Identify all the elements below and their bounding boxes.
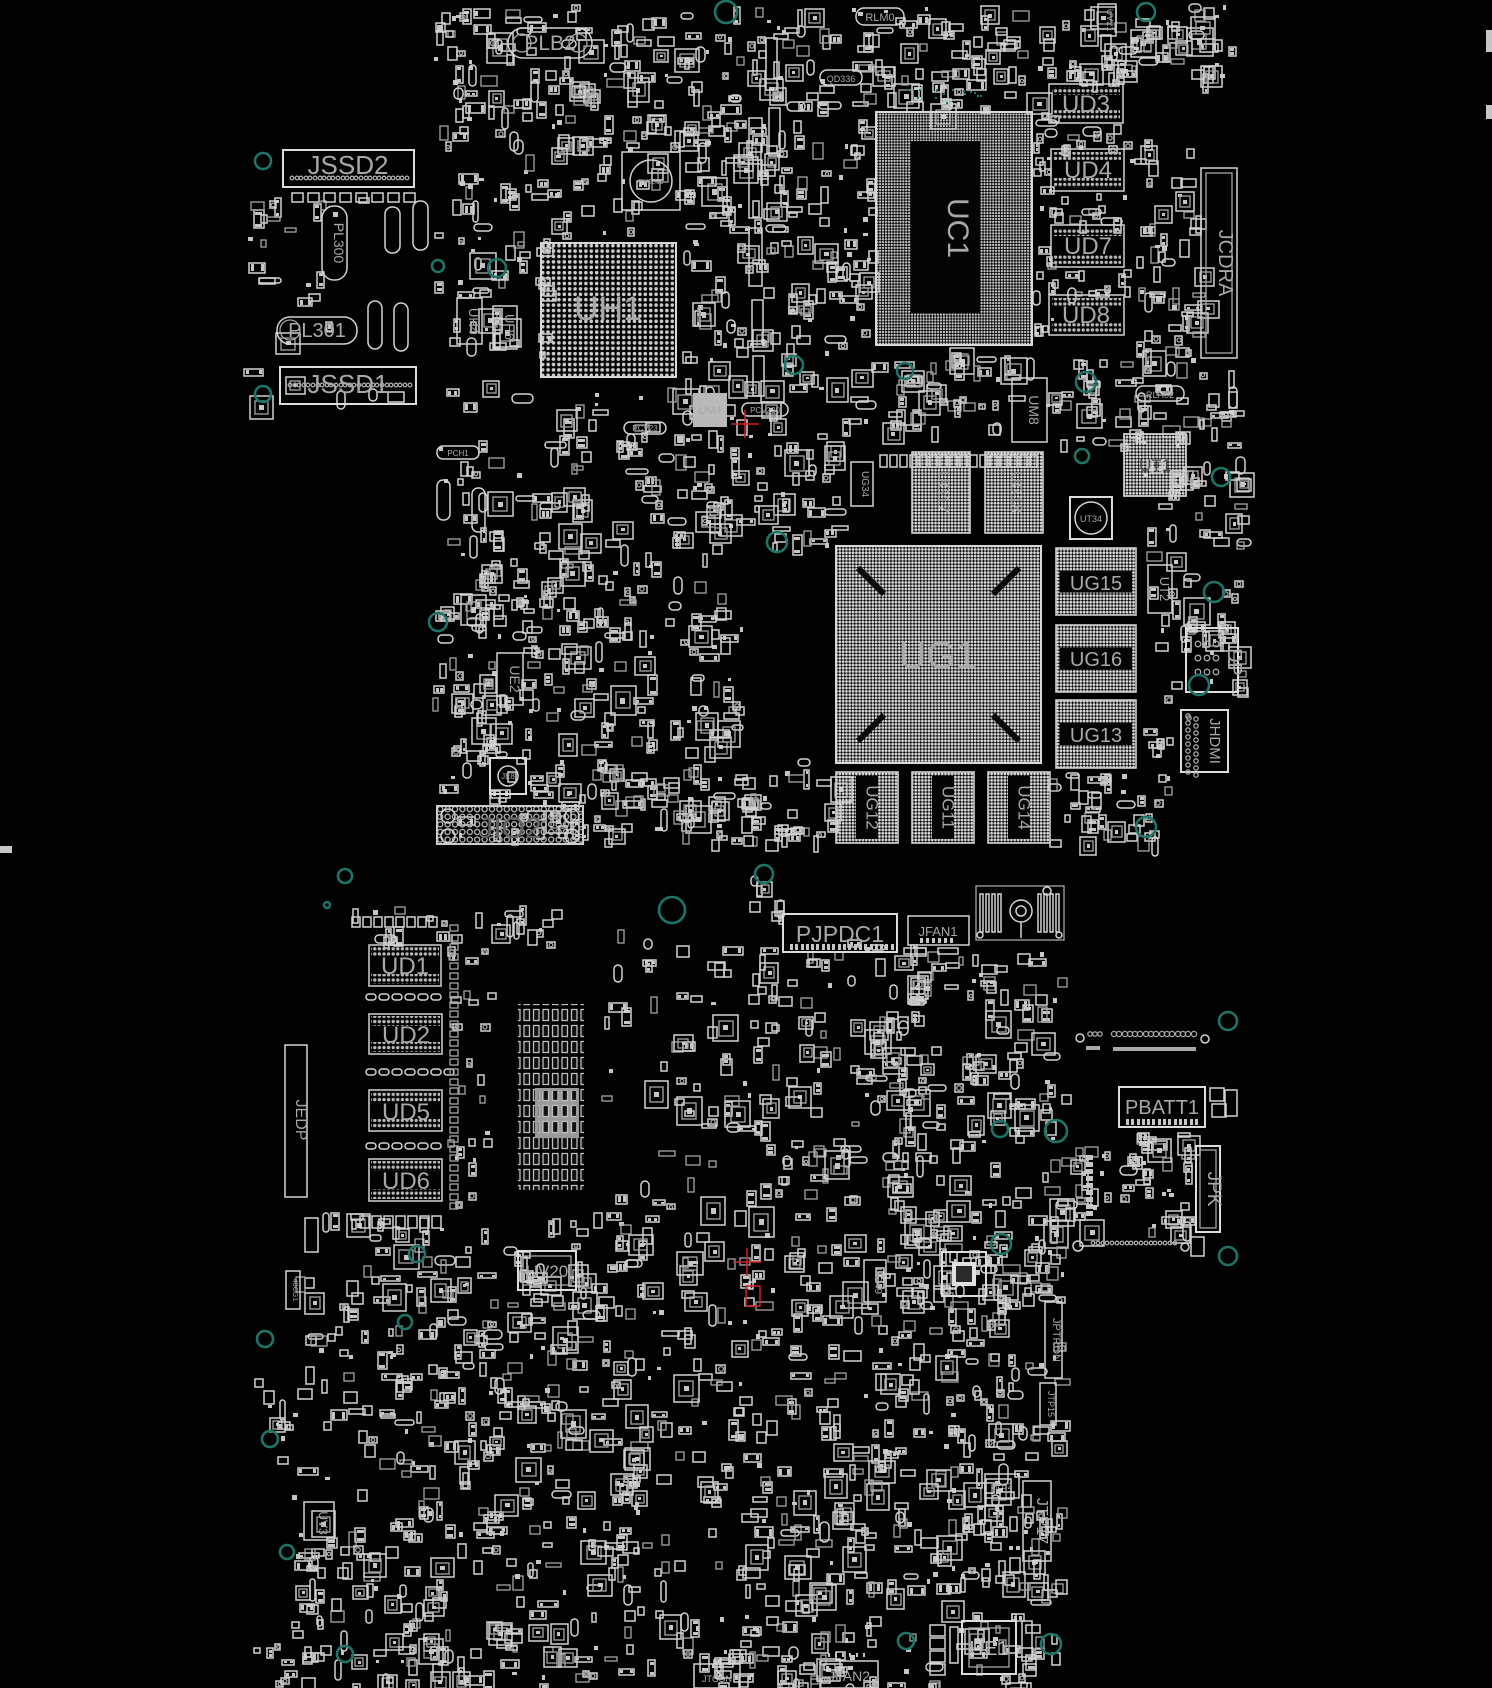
svg-text:JE8: JE8: [501, 772, 515, 781]
svg-text:UD4: UD4: [1064, 157, 1112, 184]
svg-text:PCV230: PCV230: [750, 406, 780, 415]
svg-text:UH6: UH6: [502, 314, 517, 340]
svg-text:PU2000: PU2000: [638, 179, 663, 186]
svg-text:UH4: UH4: [466, 308, 481, 334]
svg-text:QD336: QD336: [827, 74, 856, 84]
svg-text:PCH1: PCH1: [447, 449, 469, 458]
svg-text:JCDRA: JCDRA: [1214, 230, 1236, 297]
svg-text:JSSD1: JSSD1: [308, 369, 389, 399]
svg-text:UG34: UG34: [859, 471, 870, 498]
svg-text:UG14: UG14: [1015, 785, 1034, 829]
svg-text:UG12: UG12: [863, 785, 882, 829]
svg-text:JIO2: JIO2: [478, 812, 541, 845]
svg-text:UT2: UT2: [1157, 577, 1172, 602]
svg-text:PL300: PL300: [331, 223, 347, 264]
svg-text:UG11: UG11: [939, 786, 958, 829]
svg-text:UC1: UC1: [941, 198, 974, 258]
svg-text:UG15: UG15: [1070, 573, 1122, 595]
svg-text:JHDMI: JHDMI: [1206, 718, 1223, 764]
svg-text:UM8: UM8: [1026, 395, 1042, 425]
svg-text:UG1: UG1: [899, 635, 977, 677]
svg-text:PCV23: PCV23: [632, 424, 658, 433]
svg-text:UD3: UD3: [1062, 91, 1110, 118]
svg-text:UG16: UG16: [1070, 649, 1122, 671]
svg-text:UG18: UG18: [1007, 471, 1024, 513]
svg-text:UT34: UT34: [1080, 514, 1102, 524]
svg-text:PLB2: PLB2: [524, 32, 575, 55]
svg-text:DP: DP: [1223, 648, 1245, 676]
svg-text:UH1: UH1: [574, 290, 642, 328]
svg-text:UD8: UD8: [1062, 302, 1110, 329]
svg-text:UE2: UE2: [507, 665, 523, 692]
svg-text:RLM0: RLM0: [865, 12, 894, 24]
svg-text:UG13: UG13: [1070, 725, 1122, 747]
svg-text:UM4: UM4: [698, 405, 721, 417]
svg-text:UD7: UD7: [1064, 233, 1112, 260]
svg-text:RLH02: RLH02: [1146, 390, 1174, 400]
svg-text:UT1: UT1: [1139, 456, 1171, 475]
svg-text:UV21: UV21: [1105, 9, 1115, 32]
svg-text:UG17: UG17: [934, 471, 951, 513]
svg-text:JSSD2: JSSD2: [308, 150, 389, 180]
svg-text:PL301: PL301: [288, 320, 346, 342]
